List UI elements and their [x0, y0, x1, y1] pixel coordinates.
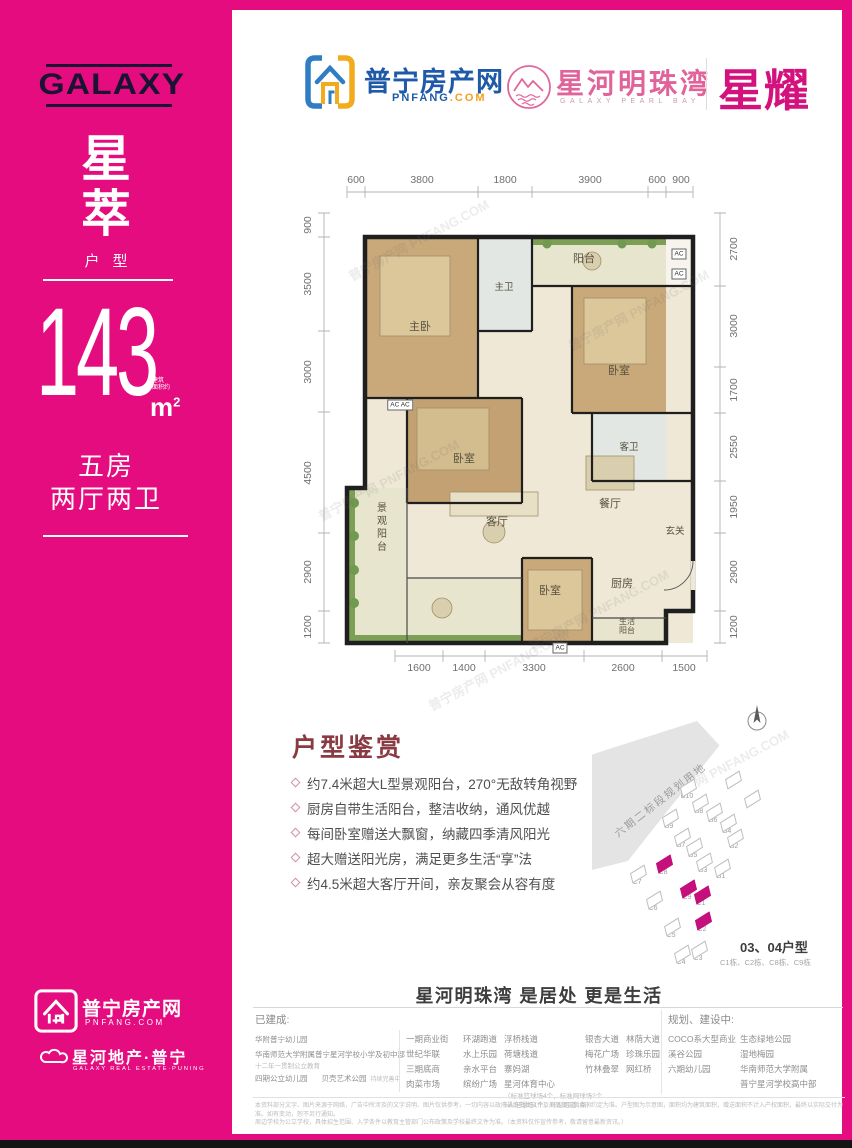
dimension-label: 1600: [407, 662, 430, 674]
room-dining: 餐厅: [599, 495, 621, 511]
planning-divider: [661, 1010, 662, 1094]
header-divider: [706, 58, 707, 110]
dimension-label: 3500: [302, 272, 314, 295]
disclaimer: 本资料部分文字、图片来源于网络，广告中所涉及的文字说明、图片仅供参考，一切内容以…: [255, 1102, 843, 1128]
dimension-label: 2550: [728, 435, 740, 458]
rooms-line-1: 五房: [0, 446, 212, 483]
room-view-balcony: 景观阳台: [373, 502, 388, 554]
type-label: 户型: [0, 250, 212, 271]
room-balcony: 阳台: [573, 250, 595, 266]
diamond-bullet-icon: [291, 828, 301, 838]
dimension-label: 2900: [728, 560, 740, 583]
rooms-line-2: 两厅两卫: [0, 479, 212, 516]
product-name-char2: 萃: [75, 187, 137, 242]
siteplan-caption-title: 03、04户型: [740, 937, 808, 956]
room-living: 客厅: [486, 513, 508, 529]
sidebar-rule-1: [43, 279, 173, 281]
planning-label: 规划、建设中:: [668, 1012, 734, 1027]
siteplan-building-C7: C7: [630, 869, 648, 887]
appreciation-title: 户型鉴赏: [292, 728, 404, 764]
room-master-bath: 主卫: [494, 279, 513, 293]
ac-label-top-1: AC: [671, 249, 686, 260]
project-logo-icon: [506, 64, 552, 110]
dimension-label: 600: [347, 174, 365, 186]
dimension-label: 1700: [728, 378, 740, 401]
siteplan-building-C2: C2: [695, 916, 713, 934]
siteplan-building: [725, 775, 743, 785]
appreciation-bullet: 每间卧室赠送大飘窗，纳藏四季清风阳光: [292, 820, 632, 845]
siteplan-building-B1: B1: [714, 863, 732, 881]
siteplan-building-C3: C3: [691, 945, 709, 963]
dimension-label: 1200: [302, 615, 314, 638]
appreciation-bullet: 约7.4米超大L型景观阳台，270°无敌转角视野: [292, 770, 632, 795]
floorplan-drawing: [292, 158, 752, 698]
footer-galaxy-sub: GALAXY REAL ESTATE·PUNING: [73, 1066, 205, 1072]
pnfang-house-icon: [33, 988, 79, 1034]
header-project-sub: GALAXY PEARL BAY: [560, 98, 700, 105]
area-note: 建筑 面积约: [152, 378, 170, 392]
diamond-bullet-icon: [291, 803, 301, 813]
galaxy-logo: GALAXY: [38, 68, 179, 102]
diamond-bullet-icon: [291, 853, 301, 863]
built-divider: [399, 1030, 400, 1092]
built-label: 已建成:: [255, 1012, 289, 1027]
siteplan-building-C4: C4: [674, 949, 692, 967]
siteplan-building-C1: C1: [694, 890, 712, 908]
header-badge: 星耀: [718, 54, 810, 119]
dimension-label: 600: [648, 174, 666, 186]
room-bedroom-bottom: 卧室: [539, 582, 561, 598]
built-col-5: 银杏大道梅花广场 竹林叠翠: [585, 1032, 619, 1077]
disclaimer-rule: [253, 1097, 845, 1098]
dimension-label: 1200: [728, 615, 740, 638]
dimension-label: 3800: [410, 174, 433, 186]
dimension-label: 3000: [728, 314, 740, 337]
built-col-1: 华附普宁幼儿园 华南师范大学附属普宁星河学校小学及初中部 十二年一贯制公立教育 …: [255, 1032, 405, 1088]
appreciation-bullet: 厨房自带生活阳台，整洁收纳，通风优越: [292, 795, 632, 820]
area-unit: m2: [150, 394, 180, 420]
siteplan-building-C5: C5: [664, 922, 682, 940]
room-bedroom-right: 卧室: [608, 362, 630, 378]
siteplan-building-B2: B2: [727, 833, 745, 851]
dimension-label: 1950: [728, 495, 740, 518]
built-col-6: 林荫大道珍珠乐园 网红桥: [626, 1032, 660, 1077]
siteplan: 六期二标段规划用地 B10B8B6B9B4B7B2B5B3B1C7C8C9C1C…: [592, 695, 848, 980]
siteplan-building-C6: C6: [646, 895, 664, 913]
planning-col-1: COCO系大型商业溪谷公园 六期幼儿园: [668, 1032, 736, 1077]
diamond-bullet-icon: [291, 778, 301, 788]
appreciation-bullet: 超大赠送阳光房，满足更多生活“享”法: [292, 845, 632, 870]
dimension-label: 2700: [728, 237, 740, 260]
floorplan: 6003800180039006009001600140033002600150…: [292, 158, 752, 698]
galaxy-logo-rule-top: [46, 64, 172, 67]
siteplan-building-C8: C8: [656, 859, 674, 877]
built-col-2: 一期商业街世纪华联 三期底商肉菜市场: [406, 1032, 449, 1092]
built-col-1-note: 十二年一贯制公立教育: [255, 1062, 405, 1071]
dimension-label: 900: [672, 174, 690, 186]
built-col-3: 环湖跑道水上乐园 亲水平台缤纷广场: [463, 1032, 497, 1092]
slogan-rule: [253, 1007, 843, 1008]
diamond-bullet-icon: [291, 878, 301, 888]
area-figure: 143: [36, 290, 230, 415]
room-guest-bath: 客卫: [619, 439, 638, 453]
room-service-balcony: 生活 阳台: [619, 617, 635, 635]
ac-label-left: AC AC: [387, 400, 413, 411]
product-name: 星 萃: [75, 132, 137, 242]
dimension-label: 900: [302, 216, 314, 234]
dimension-label: 1500: [672, 662, 695, 674]
room-foyer: 玄关: [665, 523, 684, 537]
dimension-label: 4500: [302, 461, 314, 484]
area-value: 143: [36, 290, 156, 415]
room-master-bedroom: 主卧: [409, 318, 431, 334]
appreciation-bullet: 约4.5米超大客厅开间，亲友聚会从容有度: [292, 870, 632, 895]
dimension-label: 3000: [302, 360, 314, 383]
siteplan-caption-sub: C1栋、C2栋、C8栋、C9栋: [720, 957, 811, 968]
planning-col-2: 生态绿地公园湿地梅园 华南师范大学附属普宁星河学校高中部: [740, 1032, 817, 1092]
header-project-title: 星河明珠湾: [556, 62, 711, 102]
dimension-label: 1800: [493, 174, 516, 186]
sidebar-rule-2: [43, 535, 188, 537]
dimension-label: 2900: [302, 560, 314, 583]
dimension-label: 3900: [578, 174, 601, 186]
siteplan-building: [744, 794, 762, 804]
compass-icon: [744, 701, 770, 735]
galaxy-logo-rule-bottom: [46, 104, 172, 107]
footer-galaxy-title: 星河地产·普宁: [72, 1044, 187, 1068]
footer-pnfang-title: 普宁房产网: [82, 994, 182, 1021]
poster-page: GALAXY 星 萃 户型 143 建筑 面积约 m2 五房 两厅两卫 普宁房产…: [0, 0, 852, 1148]
appreciation-bullets: 约7.4米超大L型景观阳台，270°无敌转角视野 厨房自带生活阳台，整洁收纳，通…: [292, 770, 632, 895]
bottom-edge-bar: [0, 1140, 852, 1148]
dimension-label: 2600: [611, 662, 634, 674]
slogan: 星河明珠湾 是居处 更是生活: [236, 982, 842, 1008]
product-name-char1: 星: [75, 132, 137, 187]
header-pnfang-domain: PNFANG.COM: [392, 92, 487, 104]
galaxy-cloud-icon: [40, 1046, 68, 1068]
footer-pnfang-sub: PNFANG.COM: [85, 1018, 165, 1027]
pnfang-logo-icon: [302, 52, 358, 112]
siteplan-building-B9: B9: [662, 813, 680, 831]
